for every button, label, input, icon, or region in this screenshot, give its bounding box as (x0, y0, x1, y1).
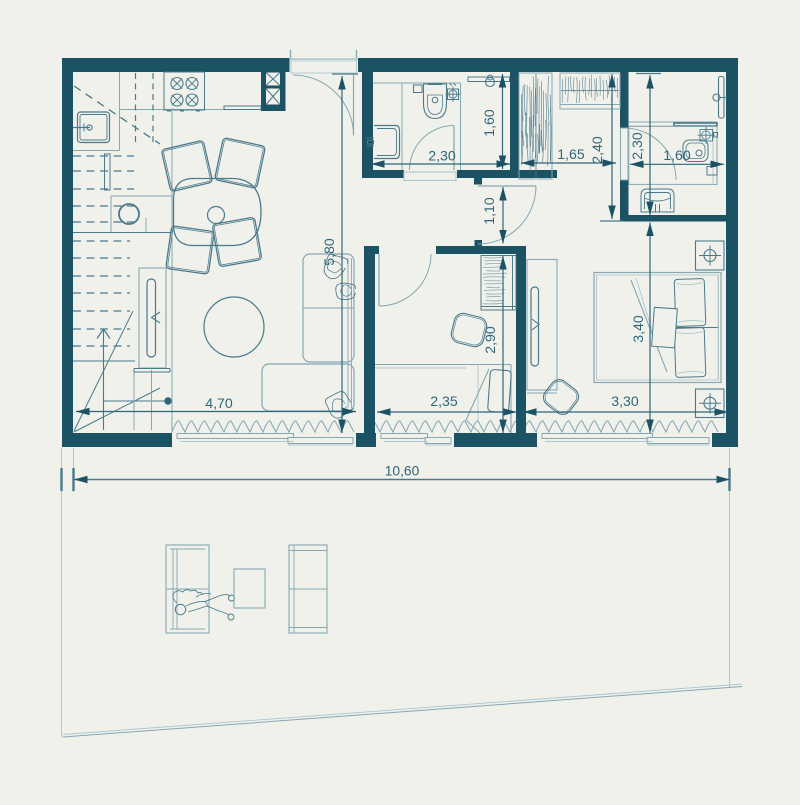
svg-text:2,30: 2,30 (629, 132, 645, 160)
svg-text:2,35: 2,35 (430, 393, 458, 409)
svg-text:2,30: 2,30 (428, 148, 456, 164)
svg-text:1,60: 1,60 (481, 109, 497, 137)
svg-text:1,60: 1,60 (663, 147, 691, 163)
svg-text:10,60: 10,60 (385, 463, 420, 479)
svg-text:1,65: 1,65 (557, 146, 585, 162)
svg-text:4,70: 4,70 (205, 395, 233, 411)
svg-text:1,10: 1,10 (481, 197, 497, 225)
svg-text:2,40: 2,40 (589, 136, 605, 164)
svg-text:3,30: 3,30 (611, 393, 639, 409)
svg-text:5,80: 5,80 (321, 238, 337, 266)
svg-text:3,40: 3,40 (630, 315, 646, 343)
svg-text:2,90: 2,90 (482, 326, 498, 354)
